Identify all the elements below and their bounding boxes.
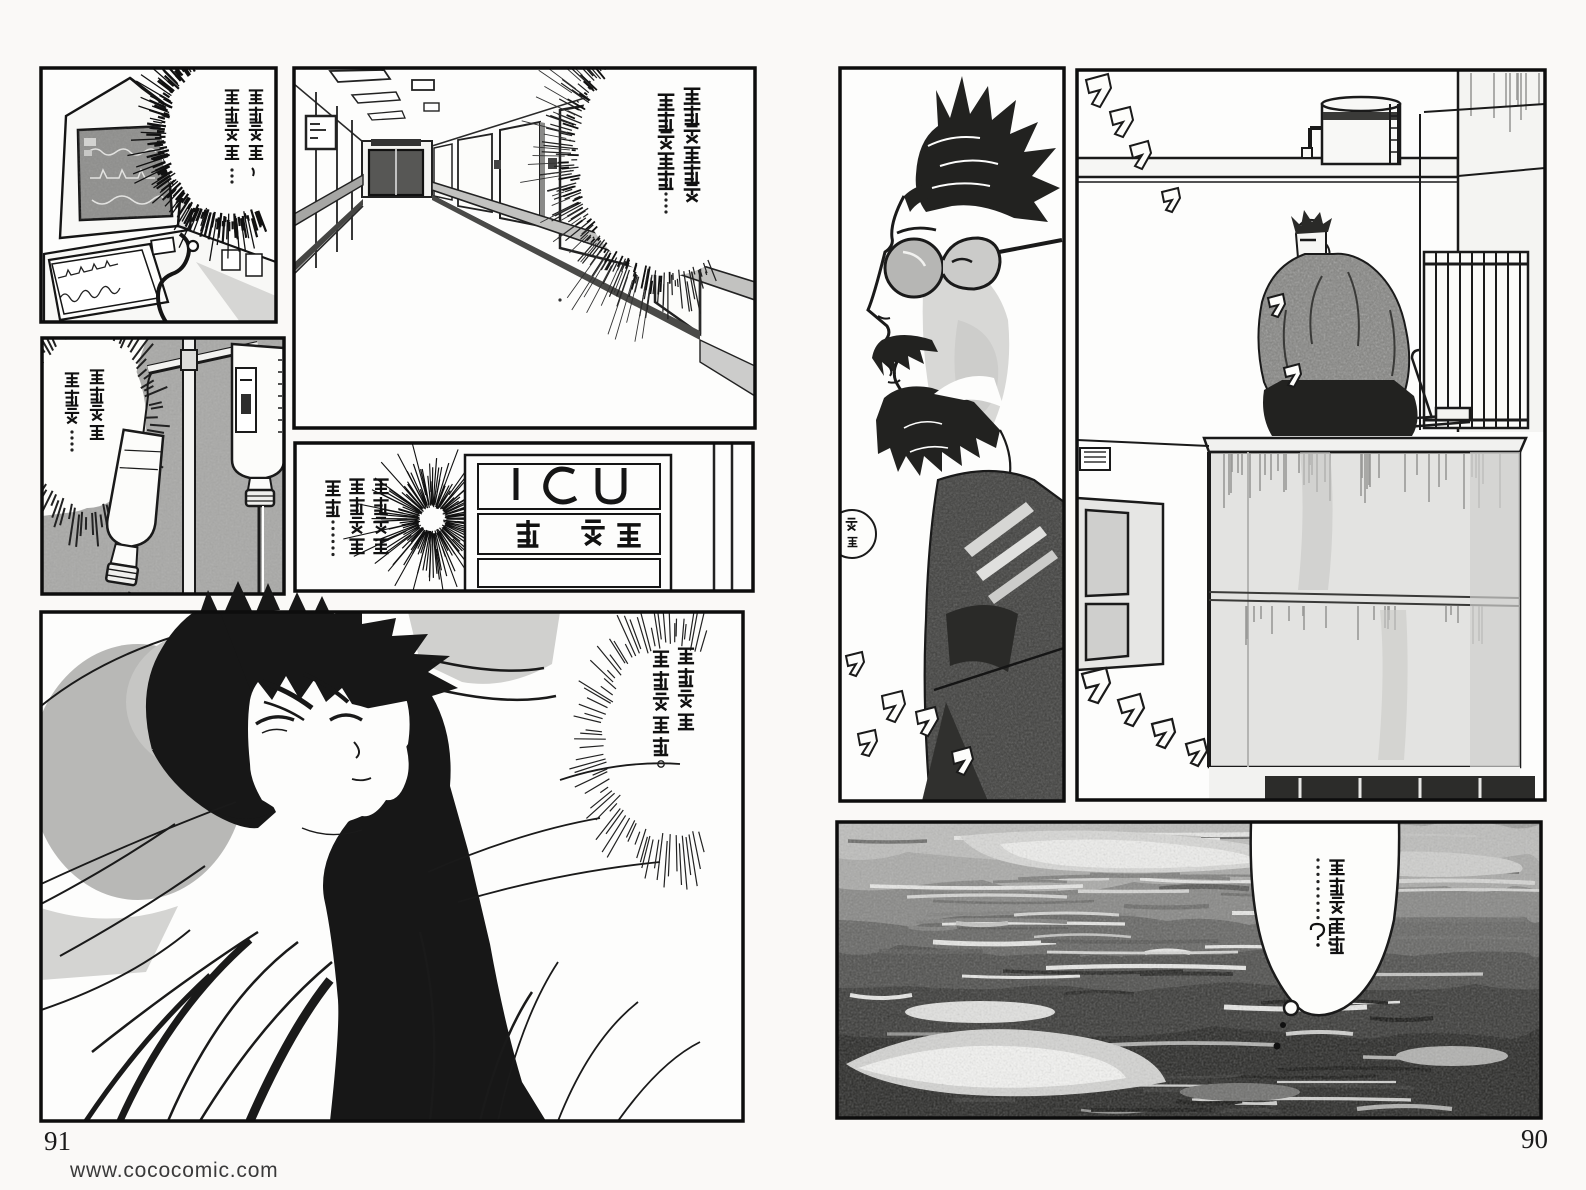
svg-text:90: 90	[1521, 1124, 1548, 1154]
svg-text:www.cococomic.com: www.cococomic.com	[69, 1159, 278, 1182]
svg-text:91: 91	[44, 1126, 71, 1156]
